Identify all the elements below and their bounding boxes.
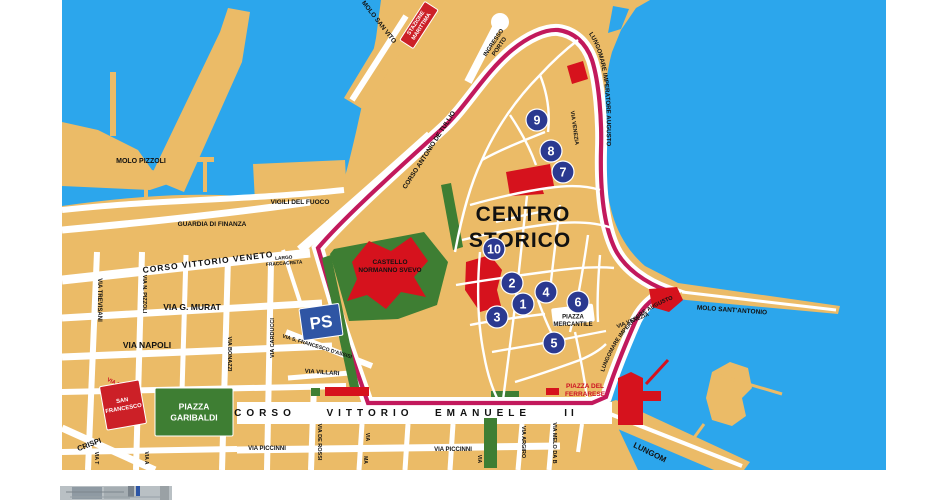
- label-via-napoli: VIA NAPOLI: [123, 340, 171, 350]
- label-via-g-murat: VIA G. MURAT: [163, 302, 221, 312]
- label-via-bonazzi: VIA BONAZZI: [226, 337, 232, 372]
- svg-text:VIA: VIA: [476, 455, 482, 464]
- label-ii: II: [564, 408, 578, 419]
- svg-text:CENTRO: CENTRO: [476, 203, 571, 226]
- label-via-cut-2: MA: [362, 456, 368, 464]
- label-molo-pizzoli: MOLO PIZZOLI: [116, 158, 166, 165]
- svg-text:4: 4: [543, 286, 550, 300]
- label-emanuele: EMANUELE: [435, 408, 531, 419]
- svg-text:VIA MELO DA B: VIA MELO DA B: [551, 422, 557, 463]
- map-marker-3: 3: [486, 306, 508, 328]
- san-francesco-box: SANFRANCESCO: [99, 380, 146, 430]
- map-marker-7: 7: [552, 161, 574, 183]
- svg-text:PIAZZA DELFERRARESE: PIAZZA DELFERRARESE: [565, 383, 606, 398]
- svg-text:3: 3: [494, 311, 501, 325]
- ps-box: PS: [299, 303, 343, 340]
- svg-text:9: 9: [534, 114, 541, 128]
- svg-text:VIA: VIA: [364, 433, 370, 442]
- svg-text:VIA A: VIA A: [143, 452, 149, 465]
- svg-text:VIA ARGIRO: VIA ARGIRO: [520, 426, 526, 459]
- bari-street-map: LUNGOMARE IMPERATORE AUGUSTOLUNGOMARE IM…: [0, 0, 950, 500]
- svg-text:VIA N. PIZZOLI: VIA N. PIZZOLI: [141, 275, 147, 314]
- svg-text:8: 8: [548, 145, 555, 159]
- label-via-piccinni-ovest: VIA PICCINNI: [248, 446, 286, 452]
- label-via-trevisani: VIA TREVISANI: [96, 278, 102, 322]
- label-via-cut-1: VIA: [364, 433, 370, 442]
- breakwater: [110, 72, 116, 136]
- map-marker-8: 8: [540, 140, 562, 162]
- photo-gray-bar: [160, 486, 169, 500]
- t-pier-east-head: [196, 157, 214, 162]
- svg-text:PS: PS: [308, 311, 333, 333]
- map-marker-9: 9: [526, 109, 548, 131]
- svg-text:10: 10: [487, 243, 501, 257]
- svg-text:1: 1: [520, 298, 527, 312]
- map-marker-6: 6: [567, 291, 589, 313]
- svg-text:VIA PICCINNI: VIA PICCINNI: [434, 447, 472, 453]
- svg-text:VIA DE ROSSI: VIA DE ROSSI: [316, 424, 322, 461]
- map-marker-2: 2: [501, 272, 523, 294]
- map-marker-5: 5: [543, 332, 565, 354]
- label-via-de-rossi: VIA DE ROSSI: [316, 424, 322, 461]
- map-marker-4: 4: [535, 281, 557, 303]
- via-sparano-strip: [484, 418, 497, 468]
- svg-text:VIA TREVISANI: VIA TREVISANI: [96, 278, 102, 322]
- photo-blue-mark: [136, 486, 140, 496]
- marina-dock: [706, 362, 752, 426]
- svg-text:VIA CARDUCCI: VIA CARDUCCI: [270, 318, 276, 358]
- svg-text:CORSO: CORSO: [234, 408, 296, 419]
- label-via-melo: VIA MELO DA B: [551, 422, 557, 463]
- svg-text:VIA T: VIA T: [93, 452, 99, 465]
- label-via-cut-3: VIA: [476, 455, 482, 464]
- red-block-corso-west: [325, 387, 369, 396]
- label-centro: CENTRO: [476, 203, 571, 226]
- label-via-piccinni-est: VIA PICCINNI: [434, 447, 472, 453]
- label-via-argiro: VIA ARGIRO: [520, 426, 526, 459]
- svg-text:VIA G. MURAT: VIA G. MURAT: [163, 302, 221, 312]
- svg-text:MA: MA: [362, 456, 368, 464]
- label-via-a: VIA A: [143, 452, 149, 465]
- photo-patch-3: [128, 486, 134, 497]
- svg-text:MOLO PIZZOLI: MOLO PIZZOLI: [116, 158, 166, 165]
- label-via-t: VIA T: [93, 452, 99, 465]
- label-corso: CORSO: [234, 408, 296, 419]
- map-marker-10: 10: [483, 238, 505, 260]
- svg-text:VIA NAPOLI: VIA NAPOLI: [123, 340, 171, 350]
- svg-text:5: 5: [551, 337, 558, 351]
- t-pier-west-head: [138, 183, 155, 188]
- photo-strip-fragment: [60, 486, 172, 500]
- label-via-carducci: VIA CARDUCCI: [270, 318, 276, 358]
- svg-text:VITTORIO: VITTORIO: [326, 408, 413, 419]
- svg-text:2: 2: [509, 277, 516, 291]
- label-via-n-pizzoli: VIA N. PIZZOLI: [141, 275, 147, 314]
- red-block-corso-east: [546, 388, 559, 395]
- piazza-garibaldi-box: PIAZZAGARIBALDI: [155, 388, 233, 436]
- green-block-small: [311, 388, 320, 396]
- svg-text:VIGILI DEL FUOCO: VIGILI DEL FUOCO: [271, 199, 330, 206]
- svg-text:GUARDIA DI FINANZA: GUARDIA DI FINANZA: [178, 221, 247, 228]
- label-vittorio: VITTORIO: [326, 408, 413, 419]
- map-marker-1: 1: [512, 293, 534, 315]
- svg-text:VIA PICCINNI: VIA PICCINNI: [248, 446, 286, 452]
- label-vigili-del-fuoco: VIGILI DEL FUOCO: [271, 199, 330, 206]
- svg-text:7: 7: [560, 166, 567, 180]
- label-piazza-del-ferrarese: PIAZZA DELFERRARESE: [565, 383, 606, 398]
- svg-text:EMANUELE: EMANUELE: [435, 408, 531, 419]
- svg-text:II: II: [564, 408, 578, 419]
- svg-text:VIA BONAZZI: VIA BONAZZI: [226, 337, 232, 372]
- label-guardia-di-finanza: GUARDIA DI FINANZA: [178, 221, 247, 228]
- svg-text:6: 6: [575, 296, 582, 310]
